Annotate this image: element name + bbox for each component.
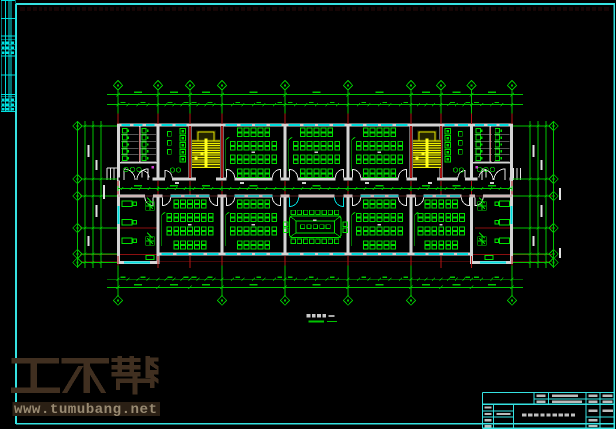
svg-text:www.tumubang.net: www.tumubang.net xyxy=(14,402,157,418)
